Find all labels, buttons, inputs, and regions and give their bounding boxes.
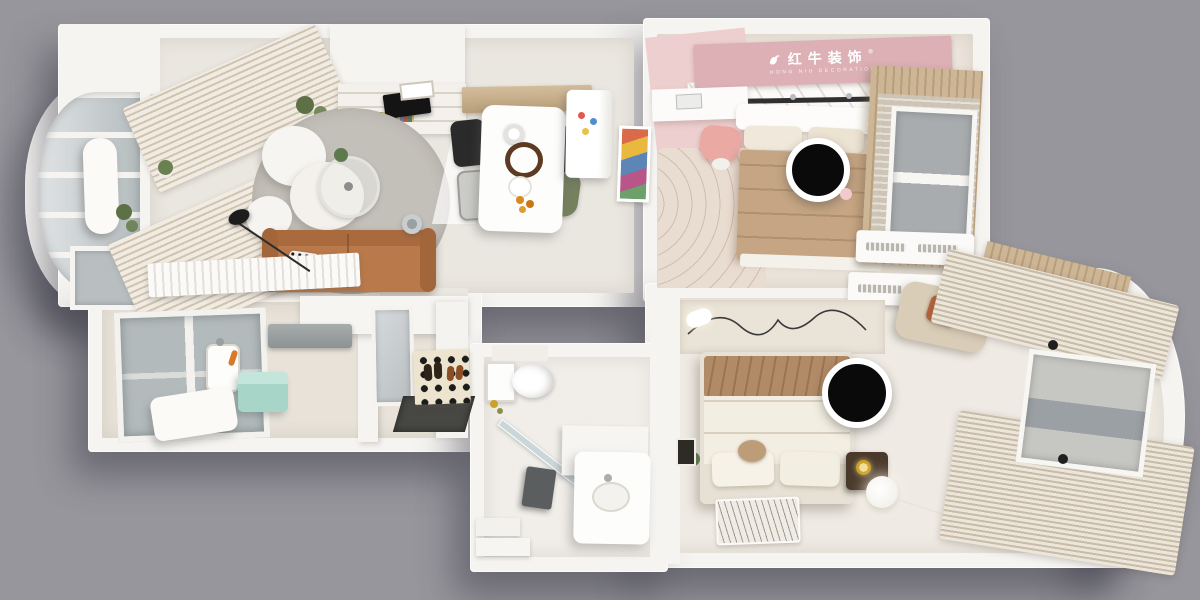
brand-trademark: ® xyxy=(868,45,879,60)
wall-art-frame xyxy=(399,80,435,100)
shoes-dark-pair xyxy=(423,364,432,382)
picture-frame-floor xyxy=(676,438,696,466)
balcony-plant xyxy=(116,204,132,220)
mint-appliance xyxy=(238,372,288,412)
bathroom-step xyxy=(476,538,530,556)
fruit xyxy=(516,196,524,204)
range-hood xyxy=(268,324,352,348)
chair-base xyxy=(712,158,730,170)
bathroom-step xyxy=(476,518,520,536)
pendant-lamp xyxy=(504,124,524,144)
curtain-rod-end xyxy=(1048,340,1058,350)
brand-bull-icon xyxy=(766,51,783,68)
pink-room-window xyxy=(884,106,977,252)
coffee-table-decor xyxy=(344,182,353,191)
zebra-rug xyxy=(715,497,801,546)
plush-toy xyxy=(840,188,852,200)
tan-accent-pillow xyxy=(738,440,766,462)
apartment-floorplan: 红牛装饰 ® HONG NIU DECORATION xyxy=(0,0,1200,600)
curtain-rod-end xyxy=(1058,454,1068,464)
laptop xyxy=(676,93,703,109)
corner-wall xyxy=(60,24,160,94)
shelf-plant xyxy=(296,96,314,114)
gold-fixture xyxy=(497,408,503,414)
potted-plant xyxy=(158,160,173,175)
sink-basin xyxy=(592,482,630,512)
sofa-armrest xyxy=(420,228,436,292)
ac-vent xyxy=(858,284,902,294)
coffee-table-plant xyxy=(334,148,348,162)
pink-bed-pillow xyxy=(744,125,802,150)
shower-panel xyxy=(521,466,556,510)
curtain-rail-hook xyxy=(846,93,852,99)
line-art-wall-panel xyxy=(680,300,885,354)
bathroom-door-opening xyxy=(492,345,548,361)
brand-logo-en: HONG NIU DECORATION xyxy=(770,66,877,76)
fruit xyxy=(526,200,534,208)
shoes-dark-pair xyxy=(434,362,443,379)
bay-window xyxy=(1016,349,1157,478)
shoes-brown-pair xyxy=(447,366,455,381)
sink-faucet xyxy=(604,474,612,482)
ac-vent xyxy=(866,242,906,251)
curtain-rail-hook xyxy=(790,94,796,100)
entry-mirror-cabinet xyxy=(371,306,415,407)
brand-logo-cn: 红牛装饰 xyxy=(787,49,867,67)
scene-background: 红牛装饰 ® HONG NIU DECORATION xyxy=(0,0,1200,600)
chrome-fan xyxy=(402,214,422,234)
brand-banner-text-row: 红牛装饰 ® xyxy=(766,48,879,68)
tv-wall-partition xyxy=(330,24,465,92)
master-bed-pillow xyxy=(779,451,840,487)
balcony-storage-column xyxy=(82,137,119,234)
fridge-magnet xyxy=(578,112,585,119)
line-art-squiggle xyxy=(680,300,885,354)
colorful-artwork xyxy=(617,125,652,202)
privacy-circle-master-bed xyxy=(822,358,892,428)
balcony-plant xyxy=(126,220,138,232)
toilet-bowl xyxy=(512,364,554,398)
master-left-wardrobe-wall xyxy=(650,292,680,564)
gold-fixture xyxy=(490,400,498,408)
faucet xyxy=(216,338,224,346)
fridge-magnet xyxy=(582,128,589,135)
sphere-floor-lamp xyxy=(866,476,898,508)
white-plate xyxy=(508,176,532,198)
fridge xyxy=(565,90,613,179)
fridge-magnet xyxy=(590,118,597,125)
dark-platter xyxy=(505,142,543,178)
gold-table-lamp xyxy=(856,460,871,475)
fruit xyxy=(519,206,526,213)
